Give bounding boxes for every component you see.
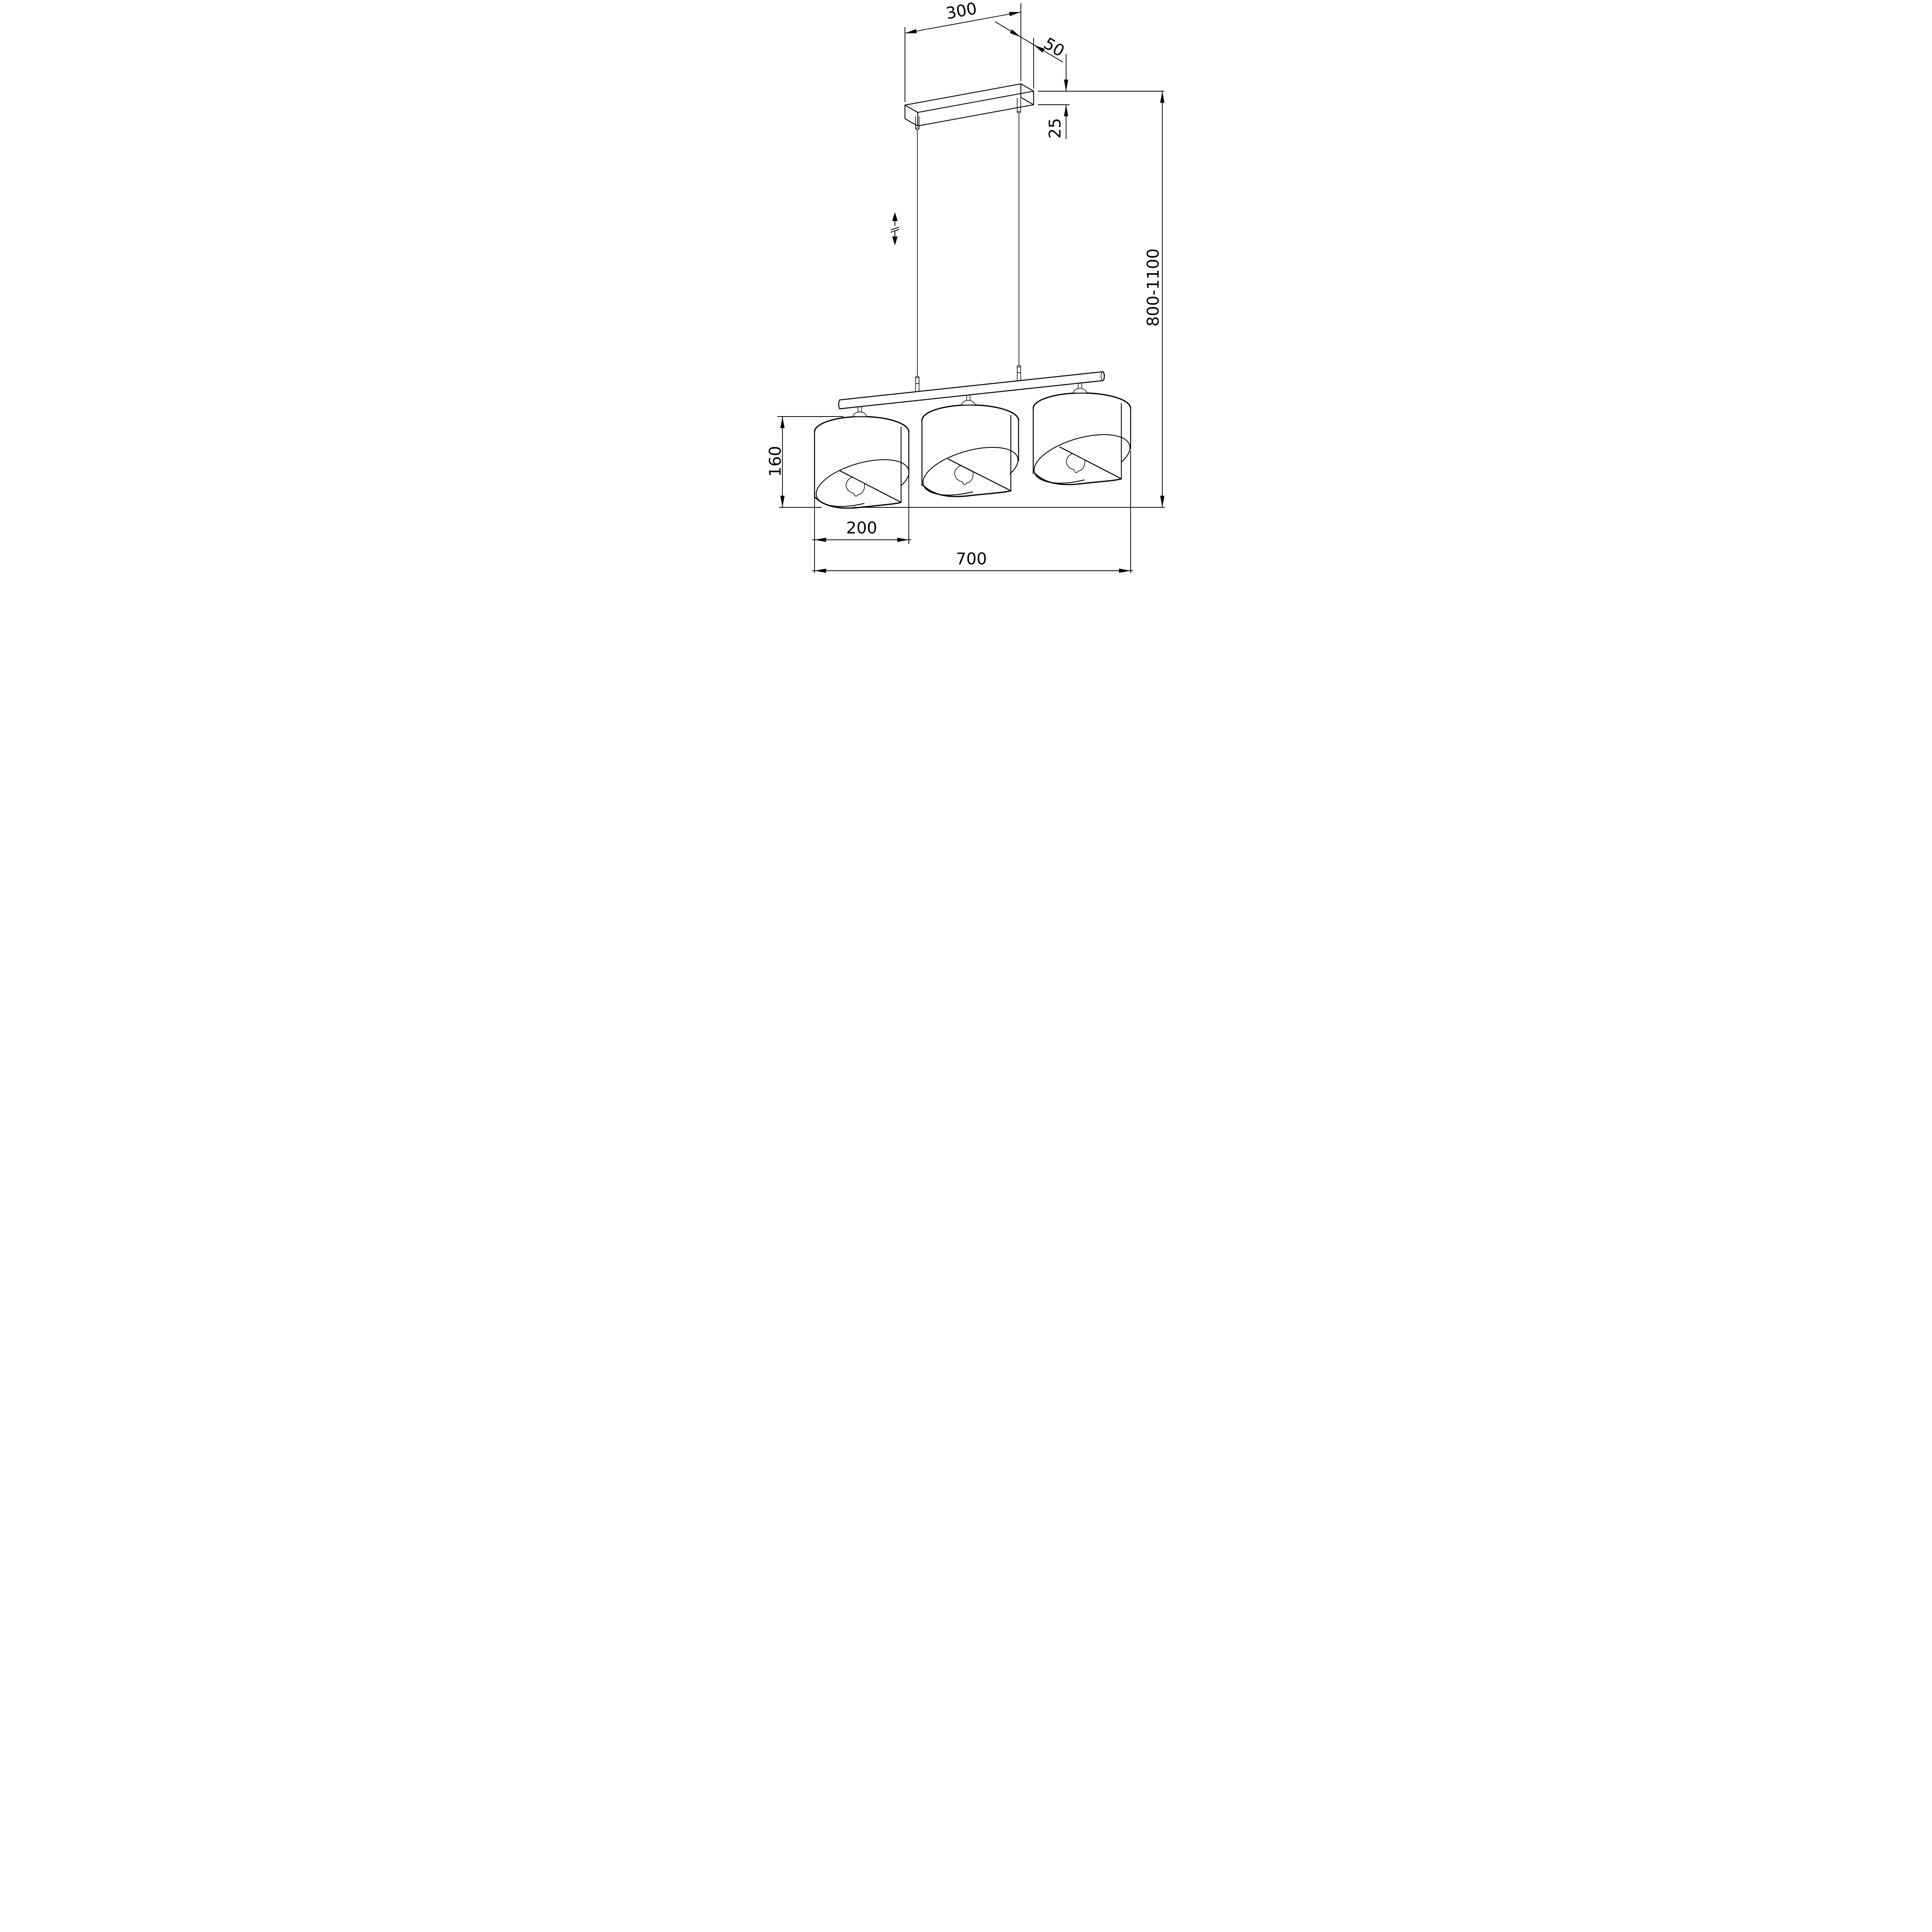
shade-socket-dome: [961, 400, 975, 405]
dimension-shade-height: 160: [767, 417, 844, 507]
arrowhead: [815, 569, 826, 573]
arrowhead: [780, 496, 784, 507]
arrowhead: [1009, 12, 1021, 16]
arrowhead: [1010, 29, 1021, 37]
arrowhead: [1064, 105, 1068, 116]
arrowhead: [1160, 496, 1164, 507]
dim-shade-diameter-label: 200: [846, 519, 877, 537]
ceiling-canopy: [905, 84, 1034, 126]
canopy-hanger-cylinder-right: [1017, 98, 1020, 113]
dimension-canopy-thickness: 25: [1038, 54, 1164, 139]
bulb-icon: [954, 466, 973, 485]
dim-shade-height-label: 160: [767, 446, 785, 477]
technical-drawing-page: 300 50 25 160 200: [767, 0, 1165, 573]
shade-wrap-edge: [1035, 473, 1121, 485]
arrowhead: [1160, 91, 1164, 103]
dimension-fixture-width: 700: [812, 451, 1133, 573]
lamp-shade-left: [815, 406, 909, 508]
arrowhead: [815, 538, 826, 542]
dim-canopy-thickness-label: 25: [1045, 118, 1064, 138]
shade-wrap-edge: [815, 497, 901, 508]
shade-socket-dome: [853, 412, 867, 417]
dim-suspension-height-label: 800-1100: [1143, 248, 1162, 327]
arrowhead: [780, 417, 784, 428]
cable-fitting-right: [1017, 366, 1020, 381]
shade-top-rim: [815, 417, 909, 432]
arrowhead: [905, 29, 917, 33]
lamp-shade-middle: [922, 394, 1019, 497]
dim-fixture-width-label: 700: [956, 549, 986, 568]
shade-top-rim: [1033, 393, 1131, 408]
arrowhead: [1119, 569, 1131, 573]
dim-canopy-depth-label: 50: [1040, 34, 1068, 60]
shade-wrap-edge: [923, 485, 1011, 497]
shade-socket-dome: [1073, 388, 1087, 393]
shade-top-rim: [922, 405, 1019, 420]
lamp-shade-right: [1033, 382, 1131, 485]
height-adjustment-arrows-icon: [891, 212, 899, 245]
bulb-icon: [1066, 454, 1085, 473]
dim-canopy-length-label: 300: [944, 0, 978, 23]
dimension-canopy-depth: 50: [995, 22, 1068, 88]
dimension-suspension-height: 800-1100: [1143, 91, 1164, 507]
arrowhead: [897, 538, 909, 542]
bulb-icon: [846, 477, 864, 496]
pendant-lamp-dimension-drawing: 300 50 25 160 200: [767, 0, 1165, 573]
cable-fitting-left: [915, 376, 919, 392]
arrowhead: [1064, 80, 1068, 91]
